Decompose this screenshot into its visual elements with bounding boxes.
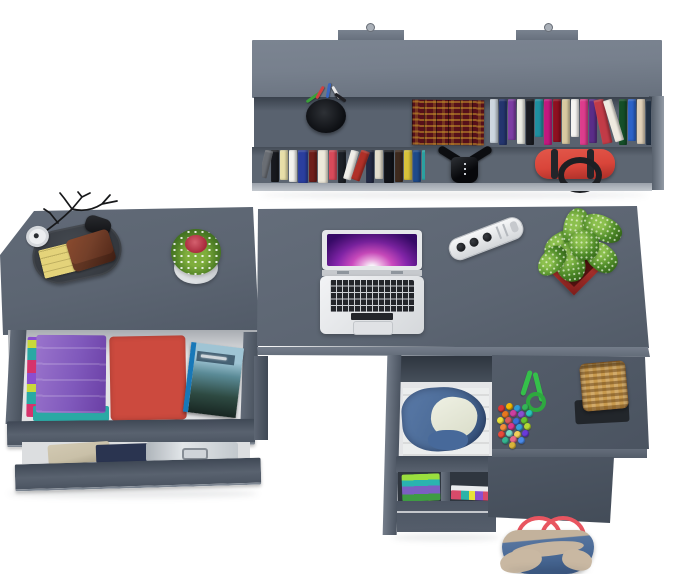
book-spine: [395, 150, 403, 182]
book-spine: [422, 150, 425, 180]
ornate-book-set: [412, 100, 484, 146]
bead: [522, 430, 529, 437]
laptop-spacebar: [351, 313, 393, 320]
bead: [518, 437, 525, 444]
book-spine: [289, 150, 297, 182]
black-headset: [430, 148, 500, 185]
book-spine: [490, 99, 498, 143]
bead: [508, 423, 515, 430]
bead: [500, 424, 507, 431]
red-duffel-bag: [535, 149, 617, 185]
plant-leaf: [569, 230, 599, 260]
bead: [510, 410, 517, 417]
book-spine: [508, 99, 516, 140]
book-spine: [404, 150, 412, 180]
shelf-lower-row: [252, 147, 652, 185]
folded-clothes-right: [451, 490, 493, 500]
red-folded-towels: [109, 335, 186, 420]
right-cabinet-front-lip: [492, 449, 647, 458]
green-potted-plant: [533, 202, 629, 294]
bead: [516, 424, 523, 431]
book-spine: [637, 99, 645, 144]
shelf-shadow: [260, 192, 648, 198]
book-spine: [535, 99, 543, 137]
book-spine: [329, 150, 337, 180]
book-spine: [544, 99, 552, 145]
drawer-unit-open-drawer: [398, 382, 493, 460]
denim-tote-bag: [500, 514, 596, 574]
bead: [506, 403, 513, 410]
drawer-unit-lower-compartment: [398, 472, 493, 502]
wicker-basket: [579, 360, 629, 412]
bottom-front-seam: [397, 511, 496, 513]
book-row-bottom: [262, 150, 425, 184]
headset-buttons: [464, 163, 466, 165]
open-laptop: [317, 226, 425, 334]
scene-desk-top-view: [0, 0, 700, 574]
book-spine: [499, 99, 507, 145]
book-spine: [646, 99, 651, 145]
shelf-bottom-lip: [252, 183, 652, 191]
hinge-tick-right: [391, 271, 403, 274]
book-spine: [309, 150, 317, 182]
bead: [524, 423, 531, 430]
book-row-top: [490, 99, 651, 146]
barrel-cactus: [171, 229, 221, 275]
book-spine: [375, 150, 383, 179]
drawer-unit-drawer-front: [396, 456, 496, 473]
bead: [509, 442, 516, 449]
pompom-beads: [497, 403, 533, 449]
dresser-shadow: [8, 489, 258, 498]
book-spine: [580, 99, 588, 145]
book-spine: [571, 99, 579, 137]
desk-leg-left: [254, 356, 268, 440]
cactus-crown: [185, 235, 207, 253]
book-spine: [298, 150, 308, 183]
drawer-unit-bottom-front: [397, 501, 496, 532]
book-spine: [413, 150, 421, 182]
purple-folded-clothes: [36, 335, 107, 414]
laptop-keyboard: [330, 280, 414, 312]
laptop-trackpad: [353, 321, 393, 335]
folded-clothes-left: [402, 473, 441, 501]
bead: [526, 410, 533, 417]
denim-fold: [428, 430, 468, 450]
book-spine: [384, 150, 394, 183]
bead: [502, 437, 509, 444]
hinge-tick-left: [337, 271, 349, 274]
dresser-drawer2-front: [15, 458, 262, 492]
book-spine: [517, 99, 525, 144]
blu-ray-title-band: [196, 351, 235, 366]
shelf-mount-peg-right: [544, 23, 553, 32]
book-spine: [318, 150, 328, 183]
drawer-unit-shadow: [392, 534, 500, 541]
book-spine: [628, 99, 636, 141]
book-spine: [280, 150, 288, 180]
pencil-cup-pens: [303, 88, 349, 116]
book-spine: [562, 99, 570, 144]
shelf-mount-peg-left: [366, 23, 375, 32]
duffel-strap-left: [551, 149, 558, 179]
compartment-divider: [441, 472, 450, 501]
blu-ray-case: [183, 342, 244, 418]
laptop-wallpaper: [327, 234, 417, 266]
book-spine: [553, 99, 561, 142]
bag-shadow: [506, 567, 590, 573]
book-spine: [526, 99, 534, 145]
headset-base: [451, 157, 478, 183]
bead: [497, 417, 504, 424]
